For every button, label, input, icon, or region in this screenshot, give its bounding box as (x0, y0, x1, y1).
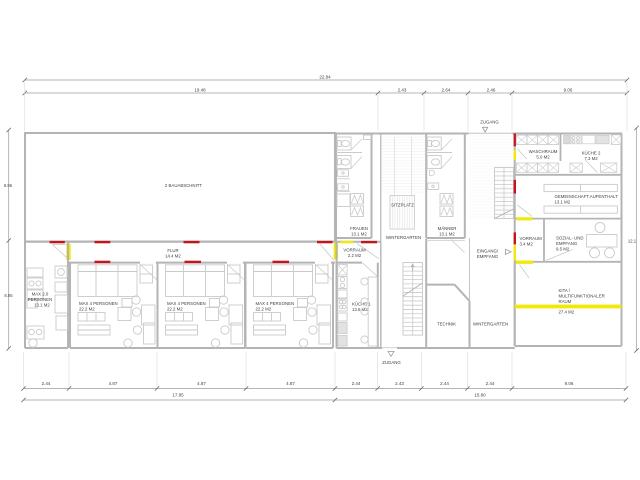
svg-text:EINGANG/: EINGANG/ (477, 249, 499, 254)
svg-text:2.43: 2.43 (395, 381, 404, 386)
svg-text:EMPFANG: EMPFANG (477, 254, 499, 259)
svg-text:2.43: 2.43 (398, 88, 407, 93)
svg-text:14.4 M2: 14.4 M2 (165, 254, 181, 259)
svg-text:WINTERGARTEN: WINTERGARTEN (473, 322, 508, 327)
svg-text:FLUR: FLUR (167, 248, 178, 253)
svg-text:MAX 2.0: MAX 2.0 (32, 292, 49, 297)
svg-text:FRAUEN: FRAUEN (350, 226, 368, 231)
svg-text:RAUM: RAUM (559, 299, 572, 304)
svg-text:VORRAUM: VORRAUM (343, 248, 366, 253)
svg-text:15.80: 15.80 (474, 393, 486, 398)
svg-text:MULTIFUNKTIONALER: MULTIFUNKTIONALER (559, 294, 605, 299)
svg-text:9.06: 9.06 (564, 88, 573, 93)
svg-text:ZUGANG: ZUGANG (480, 120, 499, 125)
svg-text:22.2 M2: 22.2 M2 (167, 307, 183, 312)
svg-text:27.4 M2: 27.4 M2 (559, 310, 575, 315)
svg-text:PERSONEN: PERSONEN (28, 297, 52, 302)
svg-text:4.87: 4.87 (109, 381, 118, 386)
svg-text:22.2 M2: 22.2 M2 (256, 307, 272, 312)
svg-text:EMPFANG: EMPFANG (556, 241, 578, 246)
svg-text:ZUGANG: ZUGANG (382, 360, 401, 365)
svg-text:4.87: 4.87 (197, 381, 206, 386)
svg-text:13.1 M2: 13.1 M2 (34, 303, 50, 308)
svg-text:9.06: 9.06 (565, 381, 574, 386)
svg-text:2.44: 2.44 (440, 381, 449, 386)
svg-text:KÜCHE 2: KÜCHE 2 (582, 151, 601, 156)
svg-text:SOZIAL- UND: SOZIAL- UND (556, 236, 584, 241)
svg-text:KITA /: KITA / (559, 288, 571, 293)
svg-text:5.0 M2: 5.0 M2 (536, 155, 550, 160)
svg-text:2 BAUABSCHNITT: 2 BAUABSCHNITT (165, 183, 203, 188)
svg-text:19.48: 19.48 (194, 88, 206, 93)
svg-text:WASCHRAUM: WASCHRAUM (529, 149, 558, 154)
svg-text:2.44: 2.44 (42, 381, 51, 386)
svg-text:GEMEINSCHAFT.AUFENTHALT: GEMEINSCHAFT.AUFENTHALT (555, 194, 619, 199)
svg-text:13.1 M2: 13.1 M2 (351, 232, 367, 237)
svg-text:8.05: 8.05 (4, 293, 13, 298)
svg-text:2.44: 2.44 (352, 381, 361, 386)
svg-text:MAX 4 PERSONEN: MAX 4 PERSONEN (167, 301, 206, 306)
svg-text:2.44: 2.44 (486, 381, 495, 386)
svg-text:2.2 M2: 2.2 M2 (348, 253, 362, 258)
svg-text:SITZPLATZ: SITZPLATZ (391, 203, 414, 208)
svg-text:17.85: 17.85 (172, 393, 184, 398)
svg-text:MAX 4 PERSONEN: MAX 4 PERSONEN (79, 301, 118, 306)
svg-text:12.1: 12.1 (628, 239, 637, 244)
svg-text:8.86: 8.86 (4, 183, 13, 188)
svg-text:13.1 M2: 13.1 M2 (439, 232, 455, 237)
svg-text:MAX 4 PERSONEN: MAX 4 PERSONEN (256, 301, 295, 306)
svg-text:TECHNIK: TECHNIK (437, 322, 456, 327)
svg-text:22.2 M2: 22.2 M2 (79, 307, 95, 312)
svg-text:VORRAUM: VORRAUM (520, 236, 543, 241)
svg-text:2.64: 2.64 (442, 88, 451, 93)
svg-text:9.5 M2: 9.5 M2 (556, 247, 570, 252)
svg-text:MÄNNER: MÄNNER (438, 226, 457, 231)
svg-text:2.46: 2.46 (487, 88, 496, 93)
svg-text:13.1 M2: 13.1 M2 (555, 200, 571, 205)
svg-text:22.84: 22.84 (319, 75, 331, 80)
svg-text:7.3 M2: 7.3 M2 (584, 156, 598, 161)
svg-text:4.87: 4.87 (286, 381, 295, 386)
svg-text:WINTERGARTEN: WINTERGARTEN (386, 235, 421, 240)
svg-text:3.4 M2: 3.4 M2 (520, 242, 534, 247)
